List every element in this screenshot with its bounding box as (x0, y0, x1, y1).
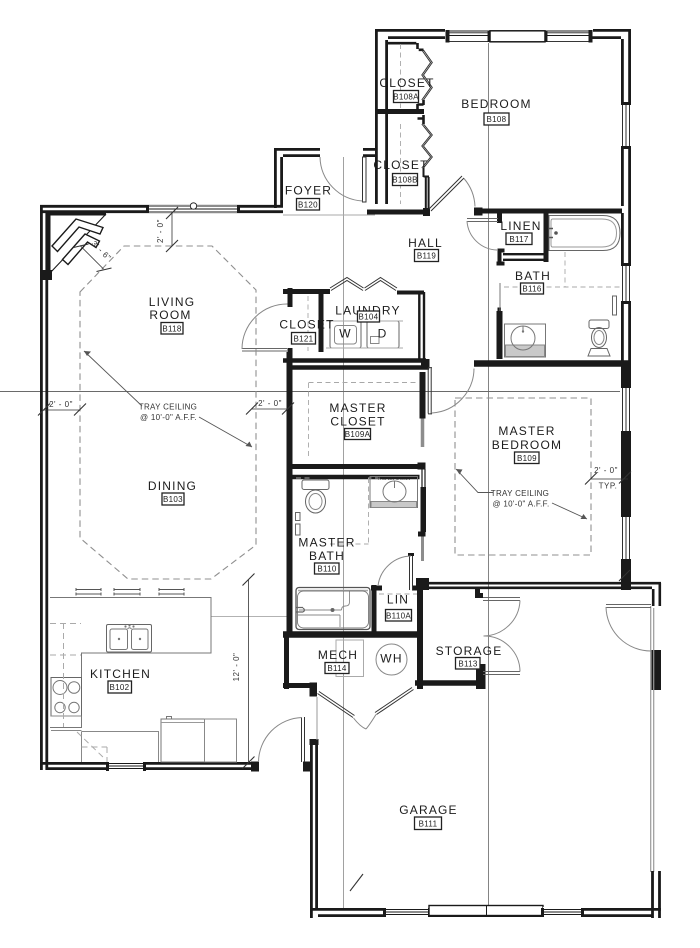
svg-text:B110: B110 (317, 565, 337, 574)
svg-text:STORAGE: STORAGE (436, 644, 503, 658)
svg-text:BEDROOM: BEDROOM (492, 438, 562, 452)
svg-text:MASTER: MASTER (298, 536, 355, 550)
svg-text:MASTER: MASTER (498, 424, 555, 438)
svg-text:WH: WH (380, 652, 402, 666)
svg-text:B108A: B108A (393, 93, 419, 102)
svg-text:CLOSET: CLOSET (379, 76, 434, 90)
svg-text:LIVING: LIVING (149, 295, 196, 309)
svg-text:CLOSET: CLOSET (330, 415, 385, 429)
svg-text:MASTER: MASTER (329, 401, 386, 415)
svg-text:B109: B109 (517, 454, 537, 463)
svg-text:B117: B117 (509, 235, 529, 244)
svg-text:LINEN: LINEN (500, 219, 541, 233)
svg-text:BATH: BATH (515, 269, 551, 283)
svg-text:B114: B114 (327, 664, 347, 673)
svg-text:LIN: LIN (387, 593, 409, 607)
svg-text:12' - 0": 12' - 0" (232, 653, 241, 682)
svg-text:DINING: DINING (148, 479, 197, 493)
svg-text:B110A: B110A (386, 612, 411, 621)
svg-text:B119: B119 (417, 252, 437, 261)
svg-text:TRAY CEILING: TRAY CEILING (139, 403, 197, 412)
svg-text:B102: B102 (110, 683, 130, 692)
svg-text:B108: B108 (487, 115, 507, 124)
svg-text:B109A: B109A (345, 430, 371, 439)
svg-text:MECH: MECH (318, 648, 358, 662)
svg-text:BATH: BATH (309, 549, 345, 563)
svg-text:2' - 0": 2' - 0" (594, 466, 618, 475)
svg-text:B118: B118 (162, 325, 182, 334)
svg-text:2' - 0": 2' - 0" (49, 400, 73, 409)
svg-text:FOYER: FOYER (285, 184, 332, 198)
svg-text:D: D (378, 327, 388, 341)
svg-text:ROOM: ROOM (149, 308, 191, 322)
svg-text:GARAGE: GARAGE (399, 803, 458, 817)
svg-text:2' - 0": 2' - 0" (258, 399, 282, 408)
svg-text:B103: B103 (163, 495, 183, 504)
svg-text:B113: B113 (458, 660, 478, 669)
svg-text:CLOSET: CLOSET (373, 158, 428, 172)
svg-text:THIS LAV SHOWN: THIS LAV SHOWN (378, 477, 411, 481)
svg-text:B108B: B108B (392, 176, 418, 185)
svg-text:B111: B111 (419, 820, 438, 829)
svg-text:KITCHEN: KITCHEN (90, 667, 151, 681)
svg-text:2' - 0": 2' - 0" (156, 219, 165, 243)
svg-text:@ 10'-0" A.F.F.: @ 10'-0" A.F.F. (140, 413, 197, 422)
svg-text:HALL: HALL (408, 236, 443, 250)
svg-text:W: W (339, 327, 352, 341)
svg-text:B120: B120 (298, 201, 318, 210)
svg-text:TYP.: TYP. (599, 482, 618, 491)
svg-text:B121: B121 (294, 335, 314, 344)
svg-text:B104: B104 (359, 313, 379, 322)
svg-text:B116: B116 (522, 285, 542, 294)
svg-text:CLOSET: CLOSET (279, 318, 334, 332)
svg-text:@ 10'-0" A.F.F.: @ 10'-0" A.F.F. (492, 500, 549, 509)
svg-text:TRAY CEILING: TRAY CEILING (491, 489, 549, 498)
svg-text:BEDROOM: BEDROOM (461, 97, 531, 111)
